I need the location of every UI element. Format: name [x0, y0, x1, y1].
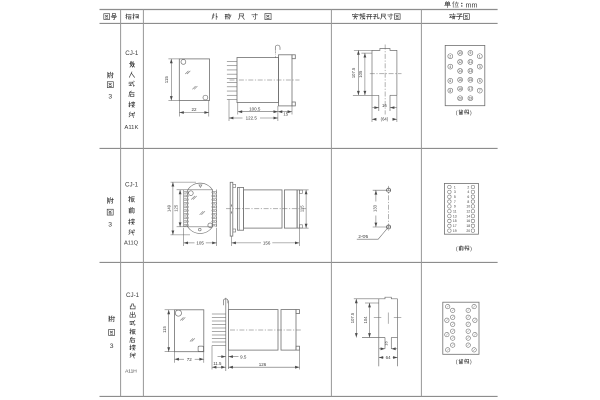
svg-text:10: 10: [466, 205, 470, 209]
svg-text:64: 64: [386, 355, 391, 360]
svg-text:(64): (64): [381, 117, 389, 122]
svg-text:15: 15: [453, 219, 457, 223]
svg-text:7: 7: [454, 200, 456, 204]
svg-text:6: 6: [467, 195, 469, 199]
svg-text:): ): [470, 246, 472, 252]
svg-text:(: (: [456, 360, 458, 366]
svg-text:133: 133: [372, 204, 377, 212]
svg-text:mm: mm: [466, 0, 478, 9]
svg-text:4: 4: [449, 65, 451, 69]
svg-text:107.5: 107.5: [350, 312, 355, 323]
svg-text:115: 115: [300, 205, 305, 212]
svg-text:10: 10: [458, 51, 462, 55]
svg-text:CJ-1: CJ-1: [126, 292, 140, 299]
svg-text:115: 115: [164, 76, 169, 84]
svg-text:122.5: 122.5: [246, 116, 258, 121]
svg-text:125: 125: [174, 204, 179, 212]
svg-text:): ): [470, 110, 472, 116]
svg-text:16: 16: [466, 219, 470, 223]
svg-text:149: 149: [166, 204, 171, 212]
svg-text:CJ-1: CJ-1: [125, 182, 139, 189]
svg-text:9: 9: [454, 205, 456, 209]
svg-text:5: 5: [454, 195, 456, 199]
svg-text:11: 11: [469, 60, 473, 64]
svg-text:4: 4: [467, 190, 469, 194]
svg-text:20: 20: [466, 229, 470, 233]
svg-text:18: 18: [466, 224, 470, 228]
svg-text:126: 126: [259, 362, 267, 367]
svg-text:15: 15: [469, 78, 473, 82]
svg-text:19: 19: [469, 96, 473, 100]
svg-text:3: 3: [110, 343, 114, 350]
svg-text:14: 14: [466, 214, 470, 218]
svg-text:16: 16: [384, 341, 389, 346]
svg-text:3: 3: [454, 190, 456, 194]
svg-text:9.5: 9.5: [240, 354, 247, 359]
svg-text:2-Φ5: 2-Φ5: [358, 234, 368, 239]
svg-text:20: 20: [458, 96, 462, 100]
svg-text:12: 12: [458, 60, 462, 64]
svg-text:12: 12: [466, 210, 470, 214]
svg-text:72: 72: [187, 357, 193, 362]
svg-text:7: 7: [479, 89, 481, 93]
svg-text:9: 9: [469, 51, 471, 55]
svg-text:22: 22: [191, 107, 197, 112]
svg-text:13: 13: [469, 69, 473, 73]
svg-text:1: 1: [479, 54, 481, 58]
svg-text:A11H: A11H: [125, 368, 137, 374]
svg-text:5: 5: [479, 79, 481, 83]
svg-text:CJ-1: CJ-1: [125, 50, 139, 57]
svg-text:156: 156: [263, 240, 271, 245]
svg-text:13: 13: [453, 214, 457, 218]
svg-text:1: 1: [454, 185, 456, 189]
svg-text:2: 2: [449, 54, 451, 58]
svg-text:A11K: A11K: [124, 125, 138, 131]
svg-text:104: 104: [363, 316, 368, 324]
svg-text:11.5: 11.5: [213, 361, 222, 366]
svg-text:3: 3: [108, 221, 112, 228]
svg-text:(: (: [456, 110, 458, 116]
svg-text:19: 19: [453, 229, 457, 233]
svg-text:8: 8: [449, 89, 451, 93]
svg-text:105: 105: [358, 70, 363, 78]
svg-text:18: 18: [458, 87, 462, 91]
svg-text:17: 17: [453, 224, 457, 228]
svg-text:16: 16: [458, 78, 462, 82]
svg-text:8: 8: [467, 200, 469, 204]
svg-text:2: 2: [467, 185, 469, 189]
svg-text:16: 16: [382, 103, 387, 108]
svg-text:(: (: [456, 246, 458, 252]
svg-text:107.5: 107.5: [351, 67, 356, 78]
svg-text:3: 3: [479, 65, 481, 69]
svg-text:3: 3: [108, 94, 112, 101]
svg-text:): ): [470, 360, 472, 366]
svg-text:A11Q: A11Q: [124, 241, 139, 247]
svg-text:100.5: 100.5: [249, 106, 261, 111]
svg-text:115: 115: [162, 325, 167, 332]
svg-text:105: 105: [196, 240, 204, 245]
svg-text:6: 6: [449, 79, 451, 83]
svg-text:14: 14: [458, 69, 462, 73]
svg-text:15: 15: [283, 112, 288, 117]
svg-text:11: 11: [453, 210, 457, 214]
svg-text:17: 17: [469, 87, 473, 91]
